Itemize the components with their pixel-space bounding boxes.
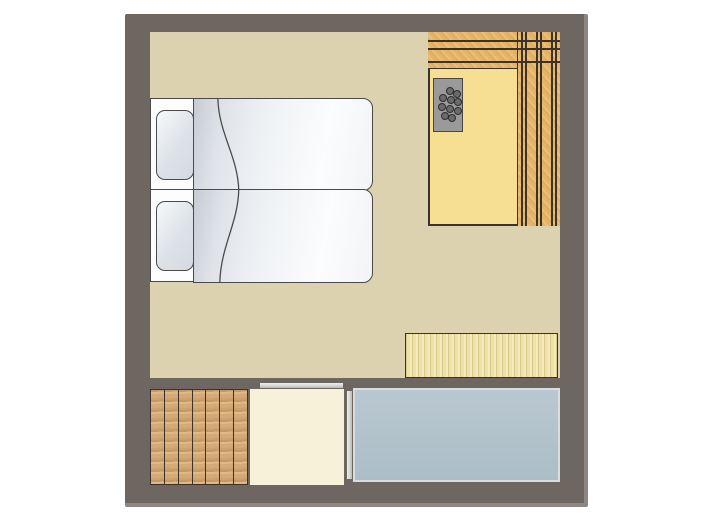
bed-bottom xyxy=(150,189,372,282)
floorplan-canvas xyxy=(0,0,713,519)
duvet xyxy=(193,98,373,191)
bed-top xyxy=(150,98,372,190)
entry-area xyxy=(250,389,344,485)
deck-plank xyxy=(206,390,220,484)
deck-plank xyxy=(151,390,165,484)
heater-stone xyxy=(438,103,446,111)
heater-stone xyxy=(454,107,462,115)
veranda-area xyxy=(353,388,560,482)
duvet-fold-line xyxy=(194,190,372,282)
duvet-fold-line xyxy=(194,99,372,190)
deck-plank xyxy=(179,390,193,484)
sliding-door-horizontal xyxy=(260,383,343,388)
heater-stone xyxy=(448,114,456,122)
wood-deck xyxy=(150,389,248,485)
pillow xyxy=(156,110,194,180)
deck-plank xyxy=(220,390,234,484)
heater-stone xyxy=(454,98,462,106)
deck-plank xyxy=(234,390,247,484)
wooden-bench xyxy=(405,333,558,378)
heater-stone xyxy=(439,94,447,102)
duvet xyxy=(193,189,373,283)
sliding-door-vertical xyxy=(347,391,352,479)
deck-plank xyxy=(193,390,207,484)
sauna-heater-icon xyxy=(433,78,463,132)
deck-plank xyxy=(165,390,179,484)
pillow xyxy=(156,201,194,271)
